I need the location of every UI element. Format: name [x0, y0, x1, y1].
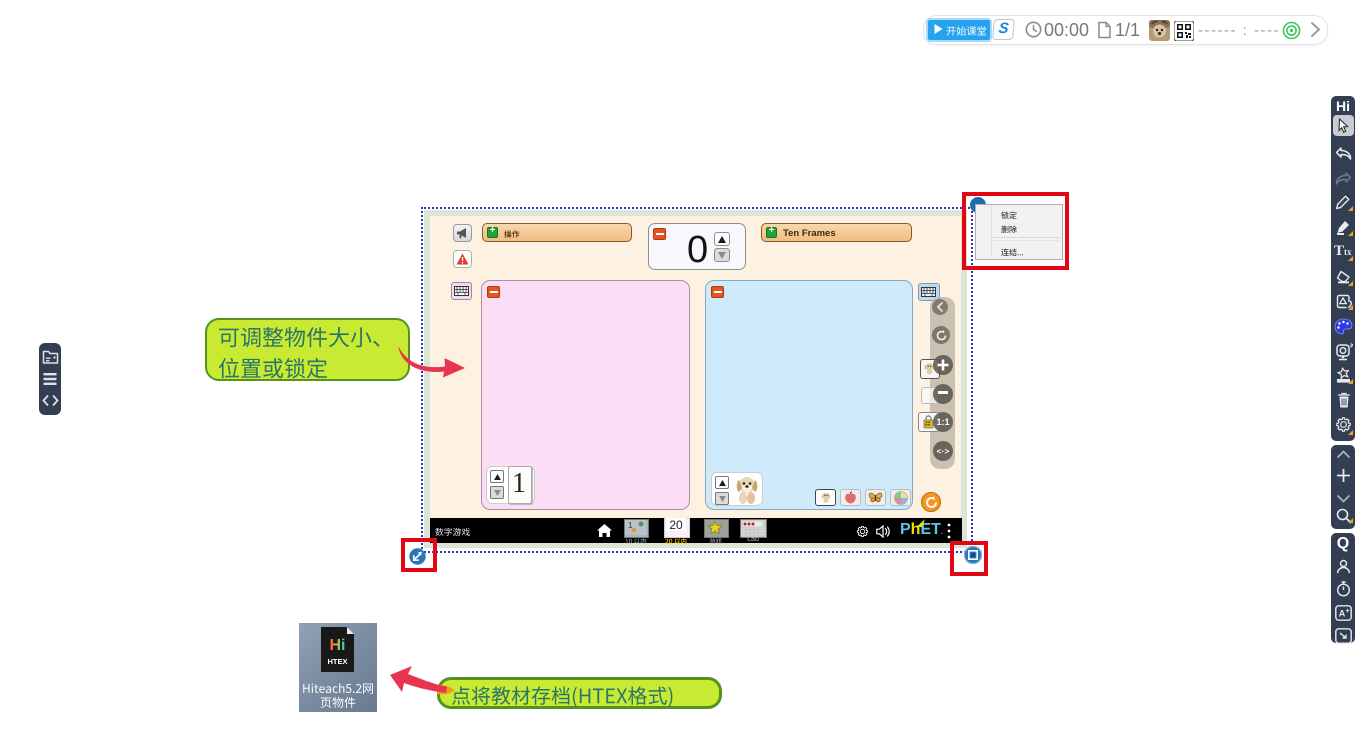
svg-text:HTEX: HTEX: [327, 657, 347, 666]
svg-text:+: +: [1345, 608, 1349, 615]
svg-text:Hi: Hi: [330, 637, 346, 654]
